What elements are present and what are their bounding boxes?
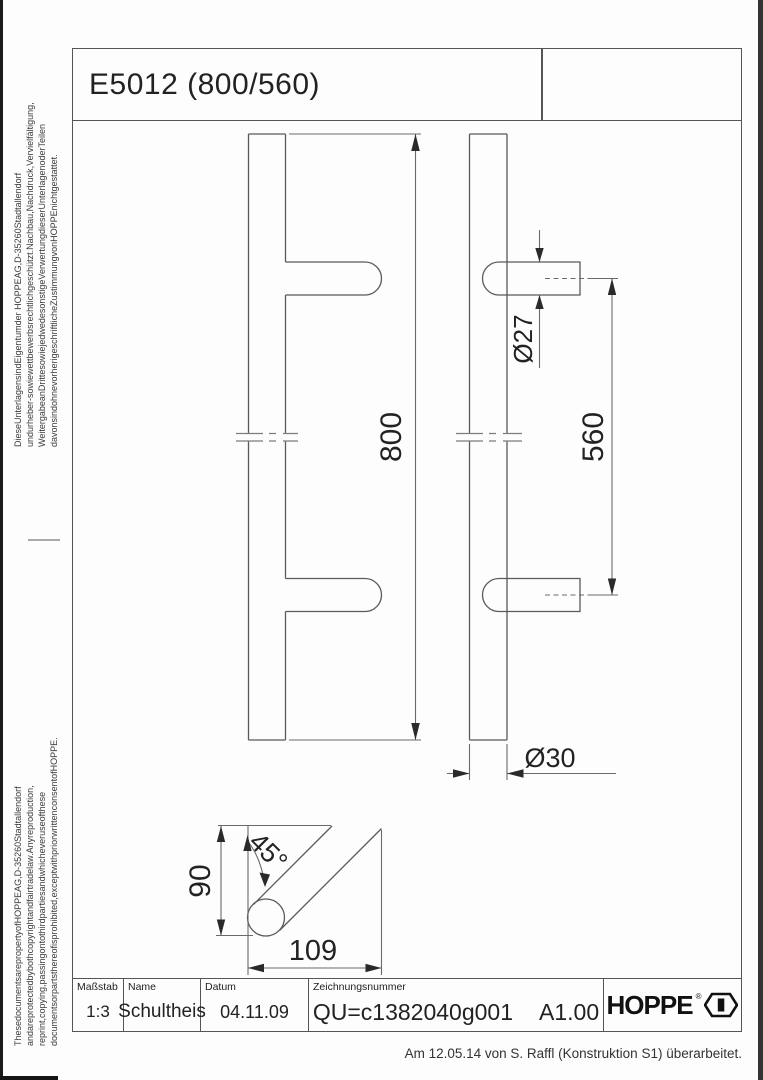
drawing-number-cell: Zeichnungsnummer QU=c1382040g001 A1.00 — [309, 979, 604, 1031]
bottom-title-block: Maßstab 1:3 Name Schultheis Datum 04.11.… — [72, 978, 742, 1032]
drawing-sheet: DieseUnterlagensindEigentumder HOPPEAG,D… — [0, 0, 763, 1080]
drawing-number-label: Zeichnungsnummer — [309, 979, 603, 993]
scale-value: 1:3 — [73, 993, 123, 1031]
drawing-revision-value: A1.00 — [539, 999, 599, 1026]
revision-note: Am 12.05.14 von S. Raffl (Konstruktion S… — [405, 1046, 742, 1061]
drawing-frame — [72, 121, 742, 978]
brand-name: HOPPE — [607, 990, 693, 1021]
brand-cell: HOPPE® — [604, 979, 741, 1031]
drawing-number-value: QU=c1382040g001 — [313, 999, 513, 1026]
top-title-block: E5012 (800/560) — [72, 48, 742, 121]
name-cell: Name Schultheis — [124, 979, 201, 1031]
name-label: Name — [124, 979, 200, 993]
title-block-divider — [541, 49, 543, 120]
registered-mark: ® — [696, 992, 702, 1001]
page-title: E5012 (800/560) — [89, 49, 320, 120]
name-value: Schultheis — [124, 993, 200, 1031]
date-value: 04.11.09 — [201, 993, 308, 1031]
date-label: Datum — [201, 979, 308, 993]
scale-cell: Maßstab 1:3 — [73, 979, 124, 1031]
scale-label: Maßstab — [73, 979, 123, 993]
hoppe-hexagon-icon — [704, 992, 738, 1018]
date-cell: Datum 04.11.09 — [201, 979, 309, 1031]
